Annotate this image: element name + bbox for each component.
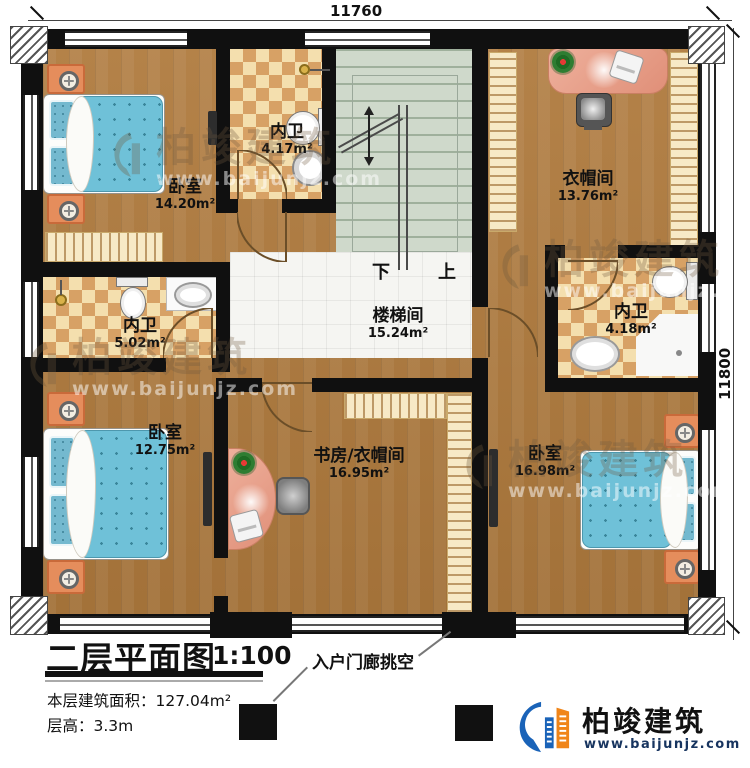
tv-icon	[208, 111, 217, 145]
window	[700, 430, 716, 570]
nightstand	[47, 194, 85, 224]
dimension-top-value: 11760	[330, 2, 382, 20]
wall	[312, 378, 472, 392]
tv-icon	[203, 452, 212, 526]
lamp-icon	[59, 401, 79, 421]
lamp-icon	[675, 559, 695, 579]
room-label-bathroom-3: 内卫4.18m²	[566, 303, 696, 337]
window	[60, 616, 210, 632]
room-name: 内卫	[222, 123, 352, 143]
room-label-study-cloakroom: 书房/衣帽间16.95m²	[294, 447, 424, 481]
corner-column-hatch	[688, 26, 725, 64]
brand-logo-icon	[514, 698, 572, 756]
towel-rail	[310, 69, 330, 71]
nightstand	[664, 414, 700, 448]
room-label-bedroom-2: 卧室12.75m²	[100, 424, 230, 458]
wall	[472, 358, 488, 614]
wardrobe	[45, 232, 163, 262]
wardrobe	[344, 393, 447, 419]
nightstand	[664, 550, 700, 584]
room-area: 15.24m²	[333, 327, 463, 342]
floor-plan-page: 11760 11800	[0, 0, 750, 768]
room-name: 衣帽间	[523, 170, 653, 190]
toilet-bowl	[652, 266, 688, 298]
window	[700, 284, 716, 352]
room-label-bedroom-3: 卧室16.98m²	[480, 445, 610, 479]
porch-annotation: 入户门廊挑空	[312, 648, 414, 673]
floor-height-text: 层高：3.3m	[47, 714, 133, 736]
dimension-tick	[706, 6, 720, 20]
shower-head-icon	[55, 294, 67, 306]
dimension-line-right	[733, 28, 734, 640]
window	[23, 457, 39, 547]
wall	[214, 392, 228, 558]
door-arc	[262, 382, 312, 432]
window	[292, 616, 442, 632]
corner-column-hatch	[688, 597, 725, 635]
corner-column-hatch	[10, 596, 48, 635]
wardrobe	[670, 52, 698, 250]
room-name: 卧室	[100, 424, 230, 444]
plant-icon	[552, 51, 574, 73]
plant-icon	[233, 452, 255, 474]
window	[700, 60, 716, 232]
stair-rail	[398, 105, 408, 270]
corner-column-hatch	[10, 26, 48, 64]
wall	[43, 358, 166, 372]
room-name: 卧室	[480, 445, 610, 465]
wardrobe	[489, 52, 517, 232]
leader-line	[273, 667, 308, 702]
blanket	[66, 96, 94, 192]
door-arc	[488, 308, 538, 358]
wardrobe	[447, 393, 472, 613]
blanket	[660, 452, 688, 548]
window	[65, 31, 187, 47]
floor-area-text: 本层建筑面积：127.04m²	[47, 689, 231, 711]
dimension-tick	[30, 6, 44, 20]
column-block	[210, 612, 292, 638]
window	[23, 282, 39, 357]
wall	[43, 262, 230, 277]
dimension-right-value: 11800	[716, 348, 734, 400]
room-name: 书房/衣帽间	[294, 447, 424, 467]
sink-icon	[174, 282, 212, 308]
room-area: 16.98m²	[480, 465, 610, 480]
door-arc	[237, 212, 287, 262]
title-underline-thin	[45, 680, 263, 682]
toilet-icon	[116, 277, 148, 287]
window	[516, 616, 684, 632]
lamp-icon	[59, 201, 79, 221]
room-area: 13.76m²	[523, 190, 653, 205]
room-label-cloakroom: 衣帽间13.76m²	[523, 170, 653, 204]
room-name: 内卫	[75, 317, 205, 337]
shower-hose	[60, 280, 62, 295]
lamp-icon	[675, 423, 695, 443]
shower-drain	[676, 350, 682, 356]
stair-direction-arrow	[368, 115, 370, 157]
screen	[581, 98, 605, 120]
room-area: 5.02m²	[75, 337, 205, 352]
room-name: 内卫	[566, 303, 696, 323]
wall	[618, 245, 700, 258]
room-label-bathroom-2: 内卫5.02m²	[75, 317, 205, 351]
porch-column	[239, 704, 277, 740]
room-label-bedroom-1: 卧室14.20m²	[120, 178, 250, 212]
room-label-stair-hall: 楼梯间15.24m²	[333, 307, 463, 341]
towel-hook-icon	[299, 64, 310, 75]
dimension-line-top	[28, 20, 732, 21]
desk-chair-icon	[276, 477, 310, 515]
toilet-bowl	[120, 287, 146, 319]
arrow-up-icon	[364, 106, 374, 115]
leader-line	[418, 631, 451, 656]
room-area: 14.20m²	[120, 198, 250, 213]
nightstand	[47, 560, 85, 594]
blanket	[66, 430, 96, 558]
sink-icon	[570, 336, 620, 372]
arrow-down-icon	[364, 157, 374, 166]
brand-website: www.baijunjz.com	[584, 737, 741, 752]
room-area: 4.18m²	[566, 323, 696, 338]
wall	[545, 245, 565, 258]
room-name: 楼梯间	[333, 307, 463, 327]
wall	[216, 378, 262, 392]
plan-scale: 1:100	[212, 641, 292, 670]
stair-up-label: 上	[438, 258, 456, 284]
room-area: 16.95m²	[294, 467, 424, 482]
lamp-icon	[59, 569, 79, 589]
wall	[214, 596, 228, 614]
room-area: 12.75m²	[100, 444, 230, 459]
brand-name: 柏竣建筑	[582, 700, 706, 740]
nightstand	[47, 64, 85, 94]
stair-landing	[230, 252, 472, 358]
porch-column	[455, 705, 493, 741]
wall	[545, 378, 700, 392]
monitor-stand	[584, 126, 602, 130]
room-label-bathroom-1: 内卫4.17m²	[222, 123, 352, 157]
window	[305, 31, 430, 47]
computer-monitor-icon	[576, 93, 612, 127]
wall	[216, 262, 230, 372]
lamp-icon	[59, 71, 79, 91]
column-block	[442, 612, 516, 638]
wall	[545, 258, 558, 378]
wall	[472, 49, 488, 307]
stair-down-label: 下	[372, 258, 390, 284]
room-area: 4.17m²	[222, 143, 352, 158]
nightstand	[47, 392, 85, 426]
window	[23, 95, 39, 190]
title-underline	[45, 671, 263, 677]
wall	[212, 358, 230, 372]
room-name: 卧室	[120, 178, 250, 198]
